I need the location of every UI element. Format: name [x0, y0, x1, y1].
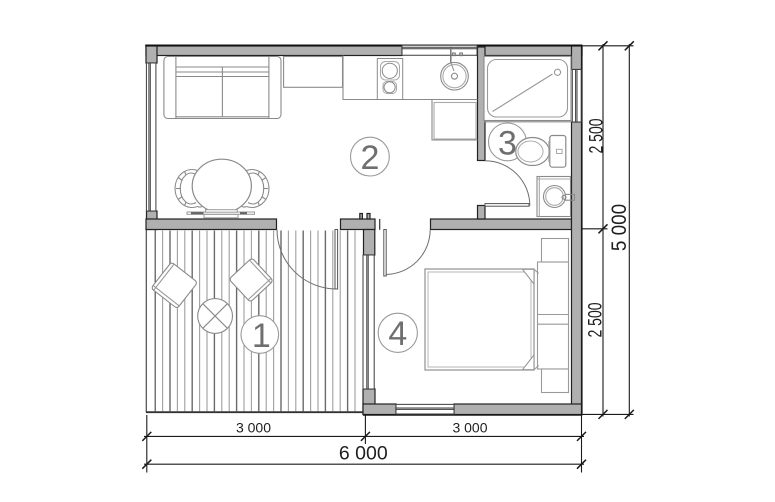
- svg-text:5 000: 5 000: [608, 204, 631, 251]
- svg-text:2 500: 2 500: [585, 118, 607, 153]
- svg-text:2 500: 2 500: [584, 302, 606, 337]
- svg-text:2: 2: [360, 139, 379, 177]
- svg-text:4: 4: [388, 315, 407, 353]
- svg-text:3: 3: [498, 124, 517, 162]
- svg-text:3 000: 3 000: [236, 419, 271, 435]
- svg-text:3 000: 3 000: [452, 419, 487, 435]
- svg-text:1: 1: [252, 317, 271, 355]
- svg-text:6 000: 6 000: [339, 443, 388, 465]
